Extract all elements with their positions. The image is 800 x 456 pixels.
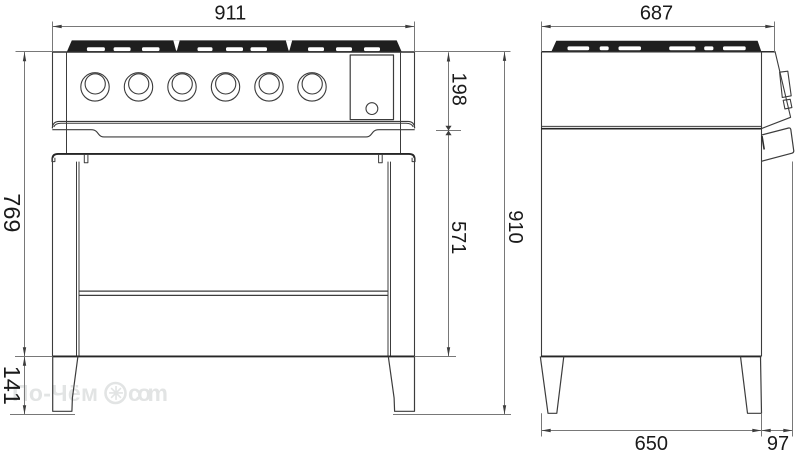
svg-text:687: 687	[640, 2, 673, 24]
svg-text:910: 910	[504, 210, 526, 243]
svg-text:911: 911	[214, 2, 246, 24]
svg-text:769: 769	[0, 193, 25, 232]
svg-text:198: 198	[447, 73, 469, 106]
svg-text:97: 97	[767, 433, 789, 455]
svg-text:650: 650	[635, 433, 668, 455]
svg-text:141: 141	[0, 366, 25, 405]
svg-text:com: com	[128, 380, 168, 406]
svg-text:571: 571	[447, 221, 469, 254]
svg-text:✳: ✳	[109, 384, 124, 404]
